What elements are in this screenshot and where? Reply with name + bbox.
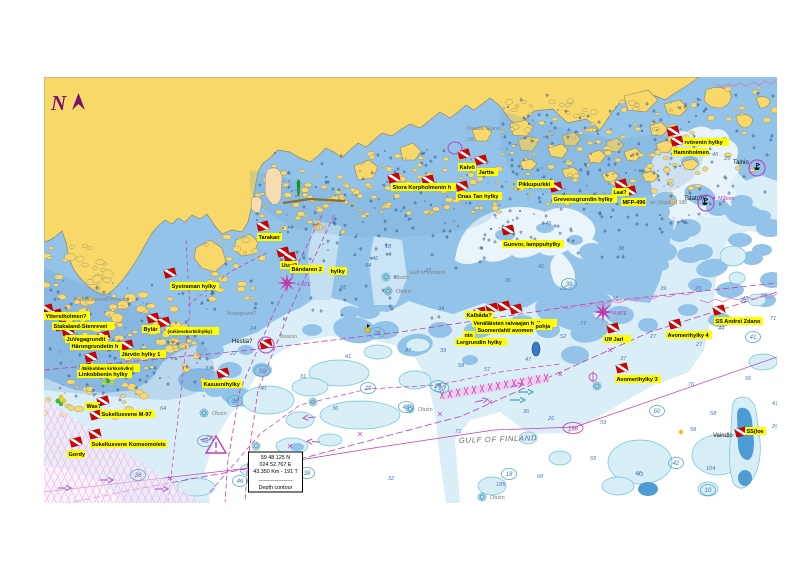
svg-text:an (Digskär) 188: an (Digskär) 188 bbox=[650, 200, 687, 206]
svg-text:36: 36 bbox=[332, 406, 339, 412]
svg-text:Hamnholmen.: Hamnholmen. bbox=[674, 150, 711, 156]
svg-text:68: 68 bbox=[537, 474, 544, 480]
svg-text:59: 59 bbox=[600, 420, 606, 426]
svg-text:57: 57 bbox=[484, 367, 491, 373]
svg-text:58: 58 bbox=[690, 427, 697, 433]
svg-text:Was?: Was? bbox=[87, 404, 102, 410]
svg-text:Obstn: Obstn bbox=[490, 495, 505, 501]
svg-text:Onas Tan hylky: Onas Tan hylky bbox=[458, 194, 500, 200]
svg-text:71: 71 bbox=[770, 316, 776, 322]
svg-text:Kalbåda?: Kalbåda? bbox=[467, 312, 493, 319]
svg-text:104: 104 bbox=[706, 466, 715, 472]
svg-text:Lergrundin hylky: Lergrundin hylky bbox=[457, 340, 503, 346]
svg-text:MFP-496: MFP-496 bbox=[623, 200, 646, 206]
svg-text:024 52.767 E: 024 52.767 E bbox=[259, 462, 291, 468]
svg-text:Systraman hylky: Systraman hylky bbox=[172, 284, 217, 290]
svg-text:Obstn: Obstn bbox=[396, 289, 411, 295]
svg-text:Tainio: Tainio bbox=[733, 160, 749, 166]
svg-text:36: 36 bbox=[232, 399, 239, 405]
svg-text:32: 32 bbox=[388, 476, 395, 482]
svg-text:Grevensgrundin hylky: Grevensgrundin hylky bbox=[554, 197, 614, 203]
svg-text:Stora Korpholmenin h: Stora Korpholmenin h bbox=[393, 185, 452, 191]
svg-text:94: 94 bbox=[365, 263, 371, 269]
svg-text:41: 41 bbox=[538, 264, 544, 270]
svg-text:N: N bbox=[50, 91, 67, 115]
svg-text:...NC: ...NC bbox=[464, 137, 476, 143]
svg-text:185: 185 bbox=[496, 482, 506, 488]
svg-text:10: 10 bbox=[705, 488, 712, 494]
svg-text:M3con: M3con bbox=[718, 196, 735, 202]
svg-text:SS Andrei Zdano: SS Andrei Zdano bbox=[716, 319, 761, 325]
svg-text:Suomenlahti avomen: Suomenlahti avomen bbox=[478, 328, 534, 334]
svg-text:38: 38 bbox=[612, 296, 619, 302]
svg-text:37: 37 bbox=[620, 356, 627, 362]
svg-text:46: 46 bbox=[545, 221, 552, 227]
svg-text:Bändaren 2: Bändaren 2 bbox=[292, 267, 322, 273]
svg-text:22: 22 bbox=[229, 351, 237, 357]
svg-text:42: 42 bbox=[673, 461, 680, 467]
svg-text:Porkkalanniemi Protecto: Porkkalanniemi Protecto bbox=[74, 297, 128, 303]
svg-text:27: 27 bbox=[649, 334, 657, 340]
svg-text:pohja: pohja bbox=[536, 324, 552, 330]
svg-text:25: 25 bbox=[694, 286, 702, 292]
svg-text:36: 36 bbox=[505, 278, 512, 284]
svg-text:Oravisio Grand: Oravisio Grand bbox=[466, 126, 500, 132]
svg-text:47: 47 bbox=[635, 471, 642, 477]
svg-text:Vaindlo: Vaindlo bbox=[713, 433, 733, 439]
svg-text:26: 26 bbox=[434, 384, 442, 390]
svg-text:36: 36 bbox=[523, 409, 530, 415]
svg-text:55: 55 bbox=[590, 456, 597, 462]
svg-text:Obstn: Obstn bbox=[394, 275, 409, 281]
svg-text:Järvön hylky 1: Järvön hylky 1 bbox=[122, 352, 161, 358]
svg-text:Kasuunihylky: Kasuunihylky bbox=[204, 382, 241, 388]
svg-text:52: 52 bbox=[560, 334, 567, 340]
svg-text:44: 44 bbox=[718, 326, 724, 332]
svg-text:42: 42 bbox=[742, 296, 749, 302]
svg-text:Avomerihylky 3: Avomerihylky 3 bbox=[617, 377, 658, 383]
svg-text:Ulf Jarl: Ulf Jarl bbox=[605, 337, 624, 343]
svg-text:Avangrund?: Avangrund? bbox=[227, 311, 257, 317]
svg-text:Gunvor, lamppuhylky: Gunvor, lamppuhylky bbox=[504, 242, 562, 248]
svg-text:Depth contour: Depth contour bbox=[259, 485, 293, 491]
svg-text:31: 31 bbox=[259, 369, 266, 375]
svg-text:31: 31 bbox=[300, 374, 306, 380]
svg-text:40: 40 bbox=[260, 386, 267, 392]
svg-text:47: 47 bbox=[405, 348, 412, 354]
svg-text:Kalvö: Kalvö bbox=[460, 165, 476, 171]
svg-text:26: 26 bbox=[373, 331, 381, 337]
svg-text:77: 77 bbox=[580, 321, 587, 327]
svg-text:43.350 Km - 191 T: 43.350 Km - 191 T bbox=[253, 469, 298, 475]
svg-text:hylky: hylky bbox=[331, 269, 346, 275]
svg-text:46: 46 bbox=[712, 152, 719, 158]
svg-text:46: 46 bbox=[202, 439, 209, 445]
svg-text:Avomerihylky 4: Avomerihylky 4 bbox=[668, 333, 710, 339]
svg-text:39: 39 bbox=[660, 286, 666, 292]
svg-text:(sukienskorkkihylky): (sukienskorkkihylky) bbox=[168, 329, 213, 334]
svg-text:18: 18 bbox=[385, 244, 392, 250]
svg-text:Jartta: Jartta bbox=[479, 170, 495, 176]
svg-text:Tarakan: Tarakan bbox=[259, 235, 281, 241]
svg-text:18: 18 bbox=[506, 472, 513, 478]
svg-text:38: 38 bbox=[304, 471, 311, 477]
svg-text:Sukellusvene Komsomolets: Sukellusvene Komsomolets bbox=[92, 442, 166, 448]
svg-text:Obstn: Obstn bbox=[212, 411, 227, 417]
svg-text:Pikkupurkki: Pikkupurkki bbox=[519, 182, 551, 188]
svg-text:76: 76 bbox=[688, 382, 695, 388]
svg-text:59 48.125 N: 59 48.125 N bbox=[261, 455, 290, 461]
svg-text:56: 56 bbox=[745, 376, 752, 382]
svg-text:64: 64 bbox=[160, 406, 166, 412]
svg-text:31: 31 bbox=[205, 366, 211, 372]
svg-text:Hestia?: Hestia? bbox=[232, 339, 253, 345]
svg-text:41: 41 bbox=[750, 335, 757, 341]
svg-text:50: 50 bbox=[654, 409, 661, 415]
svg-text:47: 47 bbox=[525, 357, 532, 363]
svg-text:Härongrundetin h: Härongrundetin h bbox=[72, 344, 120, 350]
svg-text:rvörenin hylky: rvörenin hylky bbox=[685, 140, 724, 146]
svg-text:4.80'E: 4.80'E bbox=[613, 311, 628, 317]
svg-text:Obstn: Obstn bbox=[418, 407, 433, 413]
svg-text:Ytterstholmen?: Ytterstholmen? bbox=[46, 314, 88, 320]
svg-text:24: 24 bbox=[249, 326, 256, 332]
svg-text:Gordy: Gordy bbox=[69, 452, 86, 458]
svg-text:Laal?: Laal? bbox=[614, 190, 627, 196]
svg-text:46: 46 bbox=[237, 479, 244, 485]
svg-text:29: 29 bbox=[364, 386, 372, 392]
svg-text:Bylär: Bylär bbox=[144, 327, 159, 333]
svg-text:Linkobbenin hylky: Linkobbenin hylky bbox=[79, 372, 129, 378]
svg-text:-------------------: ------------------- bbox=[258, 478, 292, 484]
svg-text:27: 27 bbox=[695, 342, 703, 348]
svg-text:Sukellusvene M-97: Sukellusvene M-97 bbox=[102, 412, 152, 418]
svg-text:26: 26 bbox=[547, 416, 555, 422]
svg-text:95: 95 bbox=[340, 285, 347, 291]
svg-text:39: 39 bbox=[566, 282, 573, 288]
svg-text:46: 46 bbox=[372, 256, 379, 262]
svg-text:41: 41 bbox=[345, 354, 351, 360]
svg-text:58: 58 bbox=[458, 363, 465, 369]
svg-text:Stakaland-Stenrevet: Stakaland-Stenrevet bbox=[54, 324, 108, 330]
svg-text:38: 38 bbox=[135, 473, 142, 479]
svg-text:Gulf of Finland: Gulf of Finland bbox=[409, 270, 445, 276]
svg-text:Beacon: Beacon bbox=[280, 334, 297, 340]
svg-text:34: 34 bbox=[438, 306, 444, 312]
svg-text:29: 29 bbox=[723, 156, 730, 162]
svg-text:58: 58 bbox=[710, 411, 717, 417]
svg-text:39: 39 bbox=[440, 348, 446, 354]
svg-text:SS(loe: SS(loe bbox=[747, 429, 764, 435]
svg-text:38: 38 bbox=[618, 246, 625, 252]
svg-text:4.50'E: 4.50'E bbox=[297, 282, 312, 288]
svg-text:198: 198 bbox=[568, 427, 579, 433]
svg-text:71: 71 bbox=[455, 429, 461, 435]
